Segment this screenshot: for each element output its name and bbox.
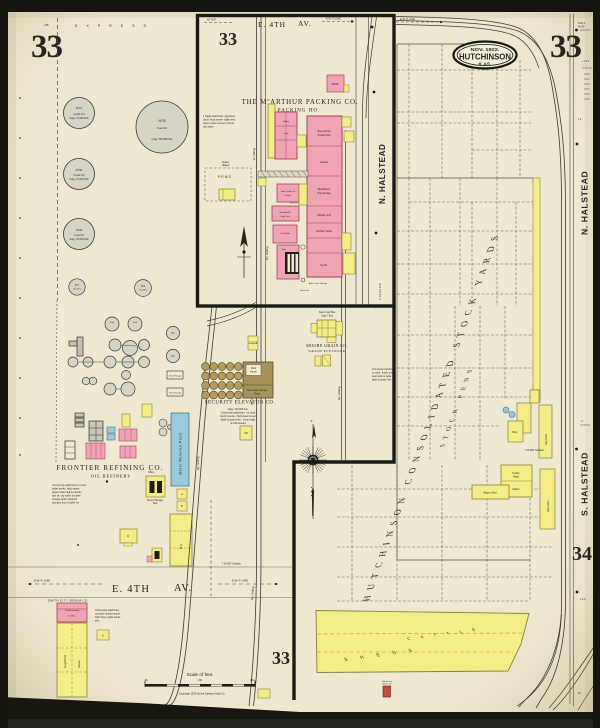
svg-text:AV.: AV. bbox=[298, 19, 312, 28]
svg-text:Ry. Siding: Ry. Siding bbox=[265, 246, 269, 260]
svg-text:Work: Work bbox=[251, 367, 257, 370]
svg-text:Fuel: Fuel bbox=[133, 322, 138, 324]
svg-text:west stock in cattle: west stock in cattle bbox=[372, 375, 392, 378]
svg-text:Beef & Pork: Beef & Pork bbox=[318, 130, 332, 133]
svg-text:Nº2: Nº2 bbox=[141, 284, 146, 288]
svg-text:& mills heated: & mills heated bbox=[230, 422, 246, 425]
svg-text:Gasoline: Gasoline bbox=[139, 290, 148, 292]
svg-text:Cellars: Cellars bbox=[285, 194, 293, 197]
svg-text:city water: city water bbox=[203, 126, 214, 129]
svg-text:Barn: Barn bbox=[512, 431, 518, 434]
svg-text:AV.: AV. bbox=[174, 583, 192, 594]
svg-text:Wagon Shed: Wagon Shed bbox=[483, 493, 497, 495]
svg-text:Hay Pens: Hay Pens bbox=[546, 500, 550, 512]
svg-text:Poultry: Poultry bbox=[512, 472, 520, 475]
svg-text:Off: Off bbox=[244, 431, 248, 435]
svg-text:Capy: 55,000 bbls: Capy: 55,000 bbls bbox=[152, 137, 174, 141]
svg-text:- 2 -: - 2 - bbox=[580, 420, 584, 423]
svg-text:Fuel Oil: Fuel Oil bbox=[157, 126, 167, 130]
svg-text:Capy: 37,000 bbls: Capy: 37,000 bbls bbox=[69, 178, 89, 181]
svg-text:Wagon: Wagon bbox=[222, 164, 230, 167]
svg-text:Nº30: Nº30 bbox=[76, 168, 83, 172]
svg-text:Stable: Stable bbox=[331, 82, 339, 86]
svg-text:Ice Ho.: Ice Ho. bbox=[320, 264, 328, 267]
svg-text:33: 33 bbox=[550, 29, 582, 65]
svg-text:lights & power elec: lights & power elec bbox=[372, 379, 392, 382]
svg-text:34: 34 bbox=[572, 543, 592, 565]
svg-text:Capy: 37,000 bbls: Capy: 37,000 bbls bbox=[69, 117, 89, 120]
svg-text:Ry. Siding: Ry. Siding bbox=[196, 456, 200, 470]
svg-text:E.W. P. LINE: E.W. P. LINE bbox=[400, 17, 415, 21]
svg-text:MOORE GRAIN CO.: MOORE GRAIN CO. bbox=[306, 343, 348, 348]
svg-text:Nº20: Nº20 bbox=[76, 228, 83, 232]
svg-text:B.S.: B.S. bbox=[179, 543, 183, 549]
svg-text:1 4 0: 1 4 0 bbox=[580, 598, 586, 601]
svg-text:100: 100 bbox=[198, 679, 203, 682]
svg-text:Capy: 18,000 bbls: Capy: 18,000 bbls bbox=[69, 238, 89, 241]
svg-text:PENS: PENS bbox=[218, 175, 232, 179]
svg-text:Hay Pens: Hay Pens bbox=[544, 433, 548, 445]
svg-text:OIL REFINERY: OIL REFINERY bbox=[91, 474, 131, 479]
svg-text:Crude Oil: Crude Oil bbox=[74, 173, 85, 177]
svg-text:Office: Office bbox=[148, 471, 155, 474]
svg-text:4 B: 4 B bbox=[44, 23, 49, 27]
svg-text:E. 4TH: E. 4TH bbox=[258, 20, 286, 29]
svg-text:GRAIN ELEVATOR: GRAIN ELEVATOR bbox=[309, 349, 346, 353]
svg-text:Scale Ho.: Scale Ho. bbox=[300, 290, 310, 292]
svg-text:Lard Refy: Lard Refy bbox=[280, 232, 290, 235]
svg-text:Scale of feet.: Scale of feet. bbox=[187, 672, 214, 677]
svg-text:Fuel: Fuel bbox=[110, 322, 115, 324]
svg-text:Steel Storage: Steel Storage bbox=[169, 392, 182, 395]
svg-text:House: House bbox=[250, 372, 257, 374]
svg-text:K.AS.: K.AS. bbox=[479, 62, 492, 67]
svg-text:A: A bbox=[102, 634, 104, 638]
svg-text:Nº27: Nº27 bbox=[76, 106, 83, 110]
svg-text:Fuel Oil: Fuel Oil bbox=[75, 233, 84, 237]
svg-text:Tank: Tank bbox=[153, 503, 159, 505]
svg-text:S. HALSTEAD: S. HALSTEAD bbox=[580, 452, 590, 516]
svg-text:Water Reserve Pond: Water Reserve Pond bbox=[179, 433, 183, 475]
svg-text:E X P R E S S: E X P R E S S bbox=[75, 24, 150, 28]
svg-text:Crude Oil: Crude Oil bbox=[74, 112, 85, 116]
svg-text:pumped thro in boiler ho: pumped thro in boiler ho bbox=[52, 502, 80, 505]
svg-text:E.W. P. LINE: E.W. P. LINE bbox=[34, 579, 50, 583]
svg-text:Fatt'g: Fatt'g bbox=[513, 476, 519, 479]
svg-text:Killing: Killing bbox=[283, 121, 290, 123]
svg-text:Capy 7 Bus: Capy 7 Bus bbox=[321, 316, 334, 318]
svg-text:No 2nd Storage: No 2nd Storage bbox=[147, 499, 164, 502]
svg-text:66' W.P.: 66' W.P. bbox=[207, 18, 217, 22]
svg-text:HUTCHINSON: HUTCHINSON bbox=[459, 52, 511, 62]
svg-text:Hog Pens: Hog Pens bbox=[63, 654, 67, 668]
svg-text:- - - -: - - - - bbox=[582, 64, 587, 67]
svg-text:A.T.& S.F. R.R.: A.T.& S.F. R.R. bbox=[378, 282, 382, 300]
svg-text:Fertilizer Tanks: Fertilizer Tanks bbox=[316, 230, 333, 233]
svg-text:Serum: Serum bbox=[77, 660, 81, 668]
svg-text:Community watchman: Community watchman bbox=[372, 368, 395, 371]
svg-text:33: 33 bbox=[272, 648, 290, 668]
svg-text:E.W. P. LINE: E.W. P. LINE bbox=[232, 579, 248, 583]
svg-text:Auto Truck Garage: Auto Truck Garage bbox=[309, 282, 328, 285]
svg-text:& Office: & Office bbox=[68, 616, 77, 618]
svg-text:Hog Storage: Hog Storage bbox=[317, 192, 331, 195]
svg-text:T W 200' Setback: T W 200' Setback bbox=[525, 449, 545, 452]
svg-text:40.: 40. bbox=[578, 692, 582, 695]
svg-text:Beef Bones: Beef Bones bbox=[318, 188, 331, 191]
svg-text:Steel Storage: Steel Storage bbox=[169, 375, 182, 378]
svg-text:SMITH CITY SERUM CO.: SMITH CITY SERUM CO. bbox=[48, 599, 89, 603]
svg-text:Distillery 2nd: Distillery 2nd bbox=[317, 214, 331, 217]
svg-text:+ 4 0 1: + 4 0 1 bbox=[582, 60, 590, 63]
svg-text:33: 33 bbox=[219, 29, 237, 49]
svg-text:N. HALSTEAD: N. HALSTEAD bbox=[580, 171, 590, 235]
svg-text:Condemnatory: Condemnatory bbox=[65, 609, 80, 612]
svg-text:E. 4TH: E. 4TH bbox=[112, 584, 150, 595]
svg-text:Steel Gram Storage: Steel Gram Storage bbox=[247, 389, 268, 392]
svg-text:Agit: Agit bbox=[171, 355, 175, 358]
svg-text:Station: Station bbox=[512, 488, 520, 491]
svg-text:Coolers 2nd: Coolers 2nd bbox=[318, 134, 332, 137]
svg-text:SECURITY ELEVATOR CO.: SECURITY ELEVATOR CO. bbox=[205, 401, 276, 406]
svg-text:Dept 2nd: Dept 2nd bbox=[281, 215, 291, 218]
svg-text:Nº28: Nº28 bbox=[158, 119, 165, 123]
svg-text:Ry. Siding: Ry. Siding bbox=[337, 386, 341, 400]
svg-text:Ham Cellar 1st: Ham Cellar 1st bbox=[281, 190, 296, 193]
svg-text:Smoked Mt: Smoked Mt bbox=[279, 211, 290, 214]
svg-text:x: x bbox=[311, 418, 313, 423]
svg-text:Stock Yds: Stock Yds bbox=[383, 683, 392, 686]
svg-text:El. Siding: El. Siding bbox=[252, 148, 256, 160]
svg-text:Steel Grain Bins: Steel Grain Bins bbox=[319, 311, 336, 314]
svg-text:Dept: Dept bbox=[284, 132, 289, 135]
svg-text:AV 40: AV 40 bbox=[578, 26, 585, 29]
svg-text:Copyright 1922 by the Sanborn: Copyright 1922 by the Sanborn Map Co. bbox=[179, 692, 226, 696]
svg-text:Coolers: Coolers bbox=[320, 161, 329, 164]
svg-text:N. HALSTEAD: N. HALSTEAD bbox=[378, 144, 387, 204]
svg-text:D: D bbox=[127, 534, 129, 538]
svg-text:Agit: Agit bbox=[171, 332, 175, 335]
svg-text:T W 200' Setback: T W 200' Setback bbox=[222, 563, 242, 566]
svg-text:Gasoline: Gasoline bbox=[73, 289, 82, 291]
svg-text:THE MºARTHUR PACKING CO.: THE MºARTHUR PACKING CO. bbox=[242, 98, 359, 106]
svg-text:Nº7: Nº7 bbox=[75, 283, 80, 287]
svg-text:Tanks: Tanks bbox=[254, 394, 261, 396]
svg-text:200: 200 bbox=[250, 679, 255, 682]
